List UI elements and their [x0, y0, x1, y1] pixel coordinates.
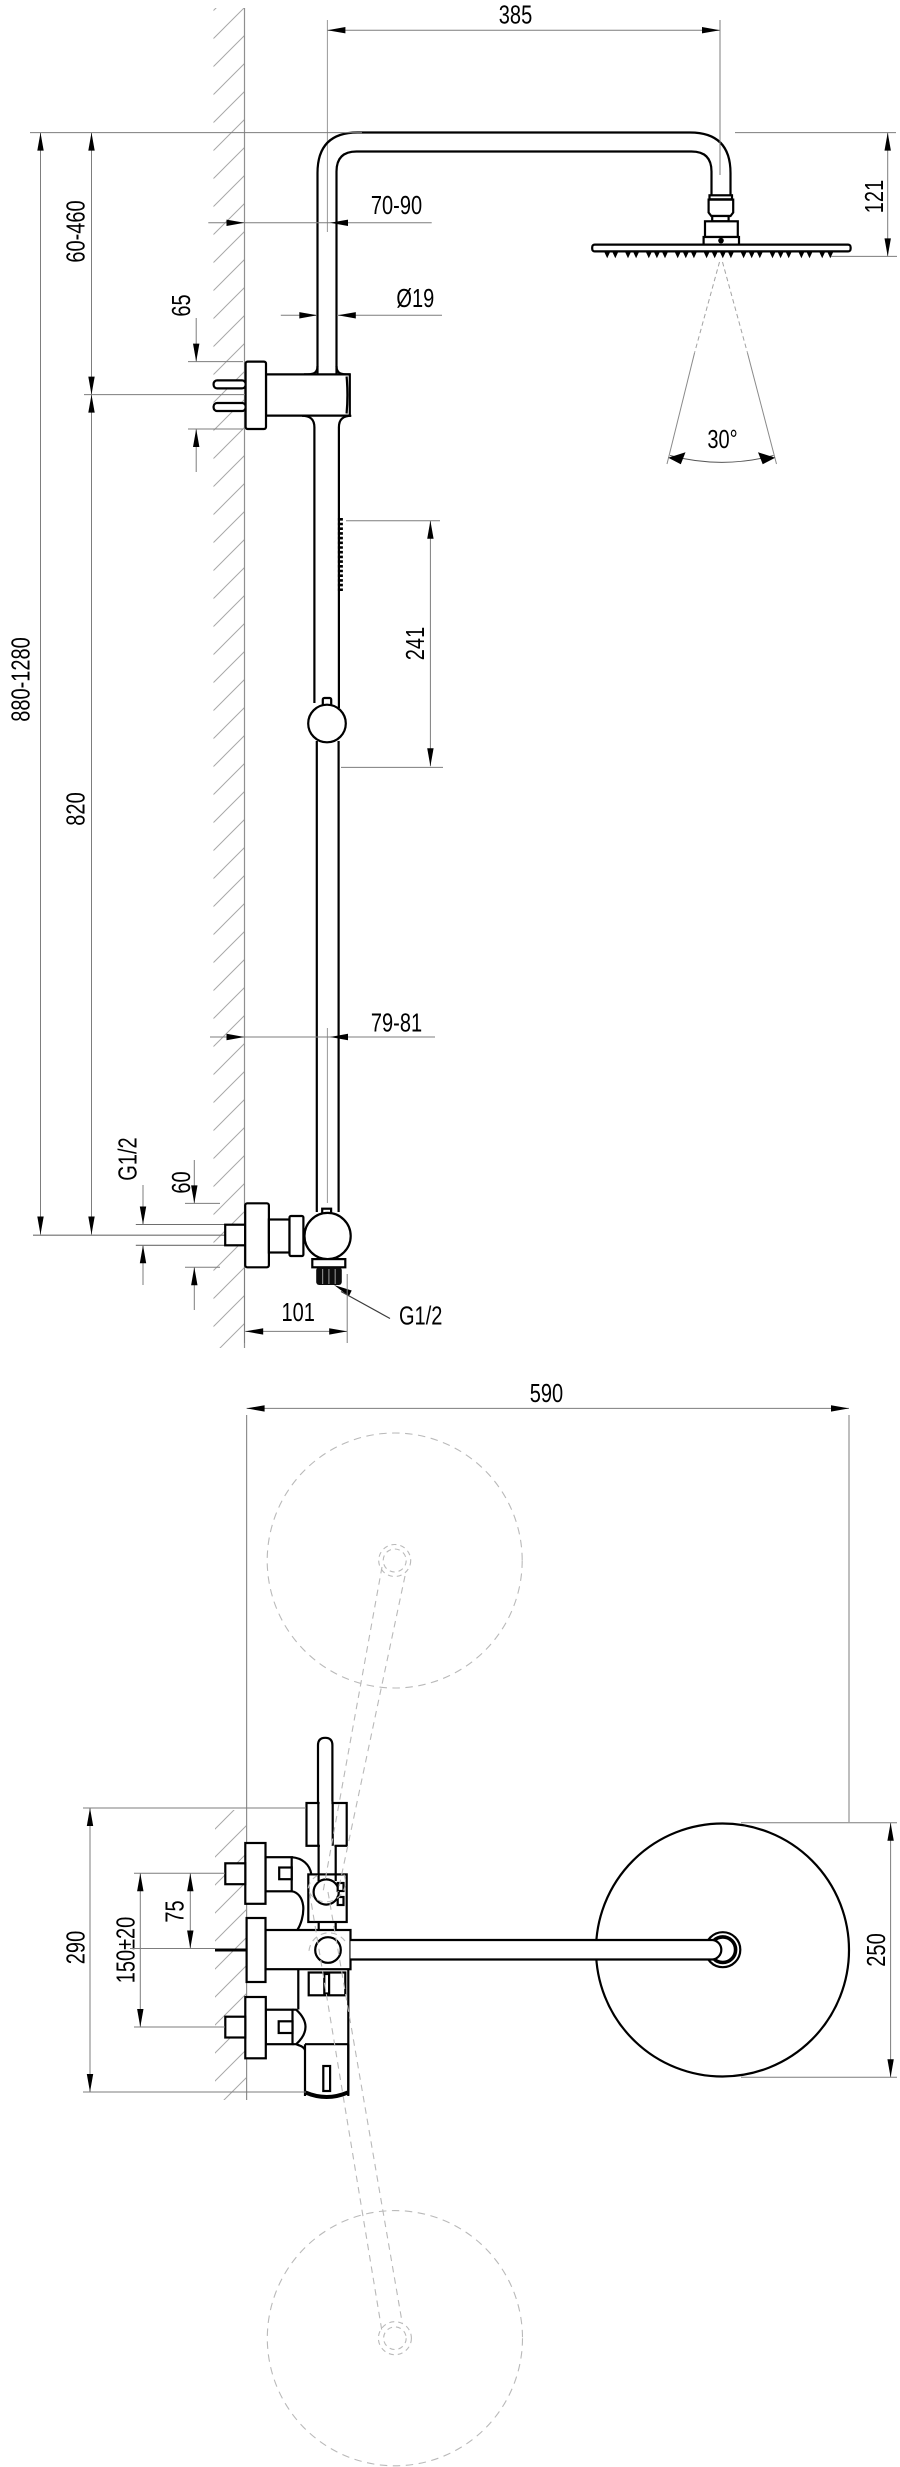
svg-text:150±20: 150±20 [111, 1917, 140, 1984]
svg-text:820: 820 [61, 792, 90, 825]
svg-text:30°: 30° [707, 424, 737, 453]
svg-text:121: 121 [859, 180, 888, 213]
svg-text:590: 590 [530, 1378, 563, 1407]
svg-text:60: 60 [166, 1171, 195, 1193]
svg-text:60-460: 60-460 [61, 200, 90, 262]
svg-text:290: 290 [61, 1931, 90, 1964]
svg-text:241: 241 [400, 627, 429, 660]
svg-text:880-1280: 880-1280 [6, 637, 35, 722]
svg-text:65: 65 [166, 294, 195, 316]
svg-text:Ø19: Ø19 [396, 283, 434, 312]
svg-text:G1/2: G1/2 [399, 1301, 442, 1330]
svg-text:70-90: 70-90 [371, 190, 422, 219]
svg-text:79-81: 79-81 [371, 1008, 422, 1037]
svg-text:385: 385 [499, 0, 532, 29]
svg-text:101: 101 [282, 1297, 315, 1326]
svg-text:250: 250 [861, 1933, 890, 1966]
svg-text:G1/2: G1/2 [113, 1137, 142, 1180]
svg-text:75: 75 [160, 1900, 189, 1922]
